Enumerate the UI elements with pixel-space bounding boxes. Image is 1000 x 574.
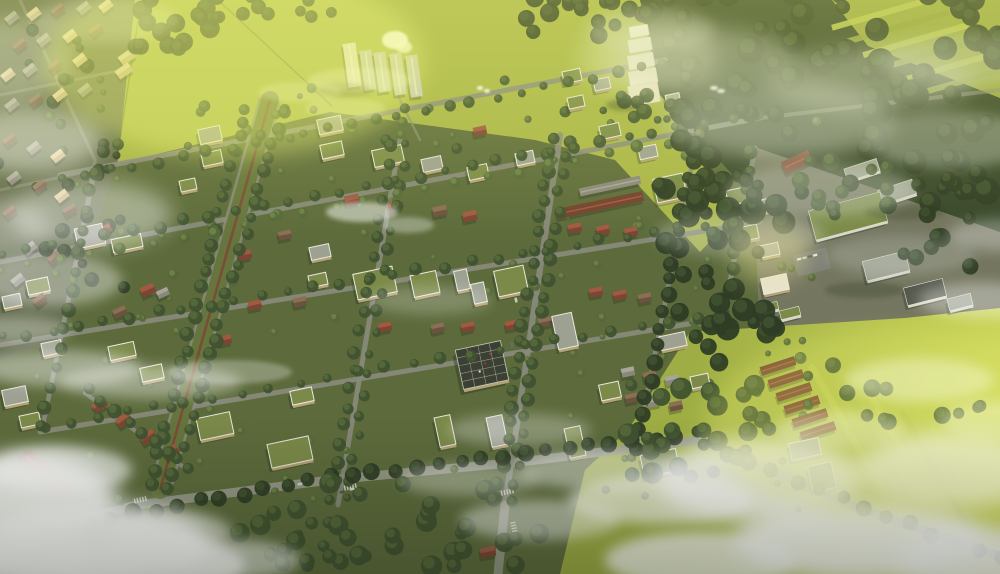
tree-highlight [746, 167, 752, 173]
tree-highlight [289, 501, 300, 512]
tree-highlight [464, 97, 470, 103]
tree-highlight [373, 329, 378, 334]
tree-highlight [346, 468, 355, 477]
tree-highlight [543, 274, 551, 282]
tree-highlight [230, 297, 235, 302]
tree-highlight [164, 447, 172, 455]
tree-highlight [573, 158, 577, 162]
tree-highlight [243, 229, 250, 236]
aerial-render-canvas [0, 0, 1000, 574]
tree-highlight [171, 500, 179, 508]
tree-highlight [534, 227, 540, 233]
tree-highlight [665, 140, 670, 145]
tree-highlight [260, 200, 266, 206]
tree-highlight [203, 212, 210, 219]
tree-highlight [258, 291, 264, 297]
tree-highlight [124, 313, 131, 320]
tree-highlight [639, 322, 644, 327]
tree-highlight [324, 374, 329, 379]
tree-highlight [98, 317, 104, 323]
tree-highlight [206, 240, 214, 248]
tree-highlight [510, 260, 515, 265]
tree-highlight [522, 394, 530, 402]
tree-highlight [652, 339, 659, 346]
smoke-wisp [725, 164, 915, 216]
tree-highlight [970, 166, 980, 176]
tree-highlight [204, 254, 211, 261]
tree-highlight [126, 418, 132, 424]
tree-highlight [725, 280, 737, 292]
tree-highlight [626, 133, 631, 138]
sunlight-glow [730, 222, 810, 282]
tree-highlight [232, 207, 238, 213]
tree-highlight [347, 455, 353, 461]
tree-highlight [67, 419, 73, 425]
tree-highlight [382, 244, 389, 251]
tree-highlight [150, 465, 158, 473]
tree-highlight [136, 315, 139, 318]
white-accent [710, 86, 718, 90]
tree-highlight [204, 348, 212, 356]
tree-highlight [522, 288, 530, 296]
tree-highlight [564, 77, 570, 83]
tree-highlight [364, 370, 369, 375]
tree-highlight [963, 9, 973, 19]
tree-highlight [410, 263, 417, 270]
tree-highlight [307, 518, 314, 525]
tree-highlight [354, 366, 360, 372]
building-roof [599, 381, 622, 401]
tree-highlight [299, 209, 305, 215]
tree-highlight [561, 107, 567, 113]
tree-highlight [540, 444, 547, 451]
tree-highlight [697, 424, 706, 433]
tree-highlight [556, 207, 563, 214]
tree-highlight [225, 161, 232, 168]
tree-highlight [124, 407, 129, 412]
tree-highlight [379, 361, 386, 368]
cloud [448, 414, 592, 446]
tree-highlight [501, 76, 507, 82]
tree-highlight [540, 82, 545, 87]
tree-highlight [169, 270, 175, 276]
tree-highlight [330, 517, 341, 528]
aerial-masterplan-render [0, 0, 1000, 574]
tree-highlight [113, 139, 119, 145]
tree-highlight [702, 277, 710, 285]
tree-highlight [530, 246, 536, 252]
tree-highlight [339, 419, 346, 426]
tree-highlight [250, 197, 258, 205]
tree-highlight [665, 258, 674, 267]
tree-highlight [326, 479, 334, 487]
tree-highlight [174, 328, 179, 333]
tree-highlight [398, 130, 403, 135]
tree-highlight [805, 156, 811, 162]
tree-highlight [184, 464, 190, 470]
tree-highlight [766, 351, 769, 354]
tree-highlight [550, 335, 556, 341]
tree-highlight [389, 198, 392, 201]
tree-highlight [360, 307, 366, 313]
tree-highlight [151, 241, 156, 246]
tree-highlight [190, 299, 198, 307]
tree-highlight [361, 230, 366, 235]
tree-highlight [252, 184, 259, 191]
tree-highlight [341, 530, 351, 540]
tree-highlight [336, 189, 341, 194]
tree-highlight [527, 358, 534, 365]
tree-highlight [784, 339, 788, 343]
tree-highlight [553, 186, 559, 192]
tree-highlight [636, 408, 645, 417]
tree-highlight [385, 159, 391, 165]
tree-highlight [178, 214, 185, 221]
tree-highlight [381, 266, 387, 272]
tree-highlight [258, 165, 266, 173]
tree-highlight [515, 320, 523, 328]
tree-highlight [212, 492, 221, 501]
tree-highlight [693, 313, 700, 320]
tree-highlight [542, 4, 553, 15]
tree-highlight [647, 129, 653, 135]
tree-highlight [373, 232, 380, 239]
tree-highlight [128, 164, 133, 169]
tree-highlight [239, 391, 244, 396]
tree-highlight [529, 276, 535, 282]
tree-highlight [600, 334, 603, 337]
tree-highlight [703, 383, 713, 393]
tree-highlight [565, 442, 573, 450]
tree-highlight [38, 402, 46, 410]
tree-highlight [664, 317, 671, 324]
tree-highlight [515, 353, 521, 359]
tree-highlight [252, 516, 263, 527]
tree-highlight [694, 286, 697, 289]
tree-highlight [181, 234, 187, 240]
tree-highlight [234, 244, 241, 251]
tree-highlight [678, 188, 686, 196]
tree-highlight [583, 438, 591, 446]
tree-highlight [654, 324, 661, 331]
tree-highlight [468, 255, 474, 261]
tree-highlight [523, 375, 531, 383]
tree-highlight [568, 413, 572, 417]
tree-highlight [690, 331, 698, 339]
tree-highlight [220, 288, 227, 295]
tree-highlight [664, 273, 671, 280]
tree-highlight [776, 21, 785, 30]
tree-highlight [196, 493, 204, 501]
tree-highlight [637, 216, 641, 220]
tree-highlight [197, 458, 202, 463]
tree-highlight [648, 356, 657, 365]
tree-highlight [181, 328, 189, 336]
tree-highlight [551, 224, 558, 231]
tree-highlight [519, 250, 524, 255]
tree-highlight [351, 547, 362, 558]
tree-highlight [657, 306, 664, 313]
tree-highlight [360, 391, 366, 397]
tree-highlight [190, 311, 198, 319]
tree-highlight [411, 461, 420, 470]
tree-highlight [242, 221, 247, 226]
tree-highlight [533, 210, 541, 218]
tree-highlight [440, 263, 447, 270]
tree-highlight [221, 180, 228, 187]
tree-highlight [422, 107, 427, 112]
tree-highlight [638, 391, 646, 399]
tree-highlight [333, 457, 341, 465]
tree-highlight [363, 182, 368, 187]
tree-highlight [536, 306, 544, 314]
cloud [460, 500, 620, 540]
tree-highlight [636, 222, 641, 227]
tree-highlight [108, 165, 113, 170]
tree-highlight [147, 479, 155, 487]
tree-highlight [451, 178, 457, 184]
tree-highlight [642, 433, 649, 440]
tree-highlight [497, 347, 501, 351]
sunlight-glow [578, 18, 718, 98]
tree-highlight [385, 140, 392, 147]
tree-highlight [370, 252, 376, 258]
tree-highlight [650, 227, 656, 233]
tree-highlight [423, 557, 435, 569]
tree-highlight [365, 464, 374, 473]
tree-highlight [386, 529, 395, 538]
tree-highlight [271, 329, 275, 333]
tree-highlight [324, 550, 332, 558]
tree-highlight [913, 178, 921, 186]
tree-highlight [533, 325, 540, 332]
cloud [368, 286, 492, 314]
tree-highlight [665, 423, 674, 432]
tree-highlight [450, 133, 454, 137]
tree-highlight [90, 168, 97, 175]
tree-highlight [155, 305, 162, 312]
tree-highlight [401, 162, 407, 168]
tree-highlight [183, 346, 190, 353]
tree-highlight [288, 533, 299, 544]
tree-highlight [269, 507, 276, 514]
tree-highlight [388, 270, 394, 276]
tree-highlight [600, 107, 604, 111]
tree-highlight [207, 302, 214, 309]
tree-highlight [344, 383, 351, 390]
tree-highlight [298, 380, 302, 384]
tree-highlight [431, 255, 434, 258]
tree-highlight [595, 136, 602, 143]
tree-highlight [485, 172, 490, 177]
tree-highlight [515, 169, 522, 176]
tree-highlight [311, 496, 315, 500]
tree-highlight [655, 117, 659, 121]
tree-highlight [705, 257, 709, 261]
tree-highlight [837, 1, 845, 9]
tree-highlight [519, 446, 528, 455]
tree-highlight [468, 160, 474, 166]
tree-highlight [495, 95, 500, 100]
tree-highlight [491, 155, 498, 162]
white-accent [717, 89, 725, 93]
tree-highlight [453, 144, 459, 150]
tree-highlight [793, 4, 806, 17]
tree-highlight [456, 542, 466, 552]
tree-highlight [393, 189, 399, 195]
tree-highlight [150, 401, 155, 406]
tree-highlight [176, 356, 184, 364]
tree-highlight [81, 171, 87, 177]
tree-highlight [540, 196, 546, 202]
tree-highlight [579, 333, 584, 338]
tree-highlight [700, 265, 709, 274]
tree-highlight [217, 301, 224, 308]
tree-highlight [209, 228, 216, 235]
tree-highlight [688, 191, 701, 204]
tree-highlight [559, 273, 564, 278]
tree-highlight [545, 159, 551, 165]
tree-highlight [180, 442, 186, 448]
tree-highlight [402, 140, 407, 145]
tree-highlight [549, 134, 555, 140]
tree-highlight [362, 288, 368, 294]
tree-highlight [620, 425, 632, 437]
tree-highlight [68, 323, 72, 327]
cloud [400, 464, 540, 496]
roof-detail [478, 370, 480, 372]
tree-highlight [632, 141, 639, 148]
tree-highlight [202, 267, 208, 273]
tree-highlight [458, 456, 465, 463]
tree-highlight [574, 243, 578, 247]
tree-highlight [712, 354, 722, 364]
tree-highlight [329, 176, 334, 181]
tree-highlight [435, 353, 442, 360]
tree-highlight [508, 557, 518, 567]
tree-highlight [392, 201, 399, 208]
tree-highlight [530, 259, 536, 265]
tree-highlight [561, 152, 567, 158]
tree-highlight [37, 421, 43, 427]
tree-highlight [662, 288, 671, 297]
tree-highlight [74, 322, 80, 328]
tree-highlight [520, 307, 526, 313]
cloud [326, 202, 398, 222]
tree-highlight [334, 439, 341, 446]
tree-highlight [519, 90, 523, 94]
tree-highlight [548, 148, 553, 153]
tree-highlight [360, 196, 365, 201]
tree-highlight [763, 316, 775, 328]
tree-highlight [365, 276, 370, 281]
tree-highlight [475, 452, 483, 460]
tree-highlight [497, 451, 506, 460]
tree-highlight [448, 560, 456, 568]
tree-highlight [310, 191, 316, 197]
white-accent [484, 89, 490, 93]
tree-highlight [424, 497, 434, 507]
tree-highlight [390, 465, 398, 473]
tree-highlight [284, 198, 289, 203]
tree-highlight [86, 251, 91, 256]
tree-highlight [300, 554, 309, 563]
tree-highlight [505, 402, 513, 410]
tree-highlight [510, 368, 517, 375]
tree-highlight [626, 380, 633, 387]
cloud [382, 217, 434, 233]
tree-highlight [256, 482, 265, 491]
tree-highlight [654, 389, 664, 399]
tree-highlight [594, 261, 599, 266]
tree-highlight [270, 212, 275, 217]
tree-highlight [605, 148, 610, 153]
tree-highlight [672, 379, 684, 391]
tree-highlight [569, 143, 575, 149]
tree-highlight [442, 167, 446, 171]
tree-highlight [113, 152, 117, 156]
tree-highlight [646, 375, 655, 384]
roof-detail [489, 353, 491, 355]
tree-highlight [881, 162, 888, 169]
tree-highlight [109, 405, 117, 413]
tree-highlight [629, 112, 636, 119]
tree-highlight [378, 195, 384, 201]
tree-highlight [508, 386, 515, 393]
tree-highlight [95, 396, 102, 403]
tree-highlight [335, 280, 341, 286]
tree-highlight [355, 412, 361, 418]
tree-highlight [354, 325, 361, 332]
tree-highlight [159, 422, 166, 429]
tree-highlight [331, 314, 336, 319]
tree-highlight [392, 176, 397, 181]
tree-highlight [527, 26, 535, 34]
tree-highlight [755, 301, 767, 313]
tree-highlight [718, 199, 732, 213]
tree-highlight [689, 175, 699, 185]
tree-highlight [525, 116, 529, 120]
tree-highlight [578, 370, 583, 375]
tree-highlight [218, 192, 225, 199]
tree-highlight [542, 248, 547, 253]
tree-highlight [272, 488, 276, 492]
tree-highlight [356, 432, 361, 437]
tree-highlight [238, 428, 242, 432]
tree-highlight [545, 240, 553, 248]
tree-highlight [594, 234, 600, 240]
tree-highlight [416, 173, 423, 180]
tree-highlight [495, 255, 501, 261]
tree-highlight [325, 496, 331, 502]
tree-highlight [348, 347, 355, 354]
tree-highlight [264, 384, 269, 389]
tree-highlight [434, 458, 441, 465]
tree-highlight [344, 404, 350, 410]
tree-highlight [151, 436, 159, 444]
tree-highlight [539, 293, 545, 299]
tree-highlight [942, 173, 951, 182]
tree-highlight [565, 136, 572, 143]
cast-shadow [606, 99, 642, 111]
tree-highlight [366, 351, 371, 356]
tree-highlight [734, 300, 747, 313]
tree-highlight [354, 488, 362, 496]
tree-highlight [137, 428, 144, 435]
tree-highlight [344, 494, 348, 498]
tree-highlight [283, 480, 290, 487]
tree-highlight [520, 11, 529, 20]
